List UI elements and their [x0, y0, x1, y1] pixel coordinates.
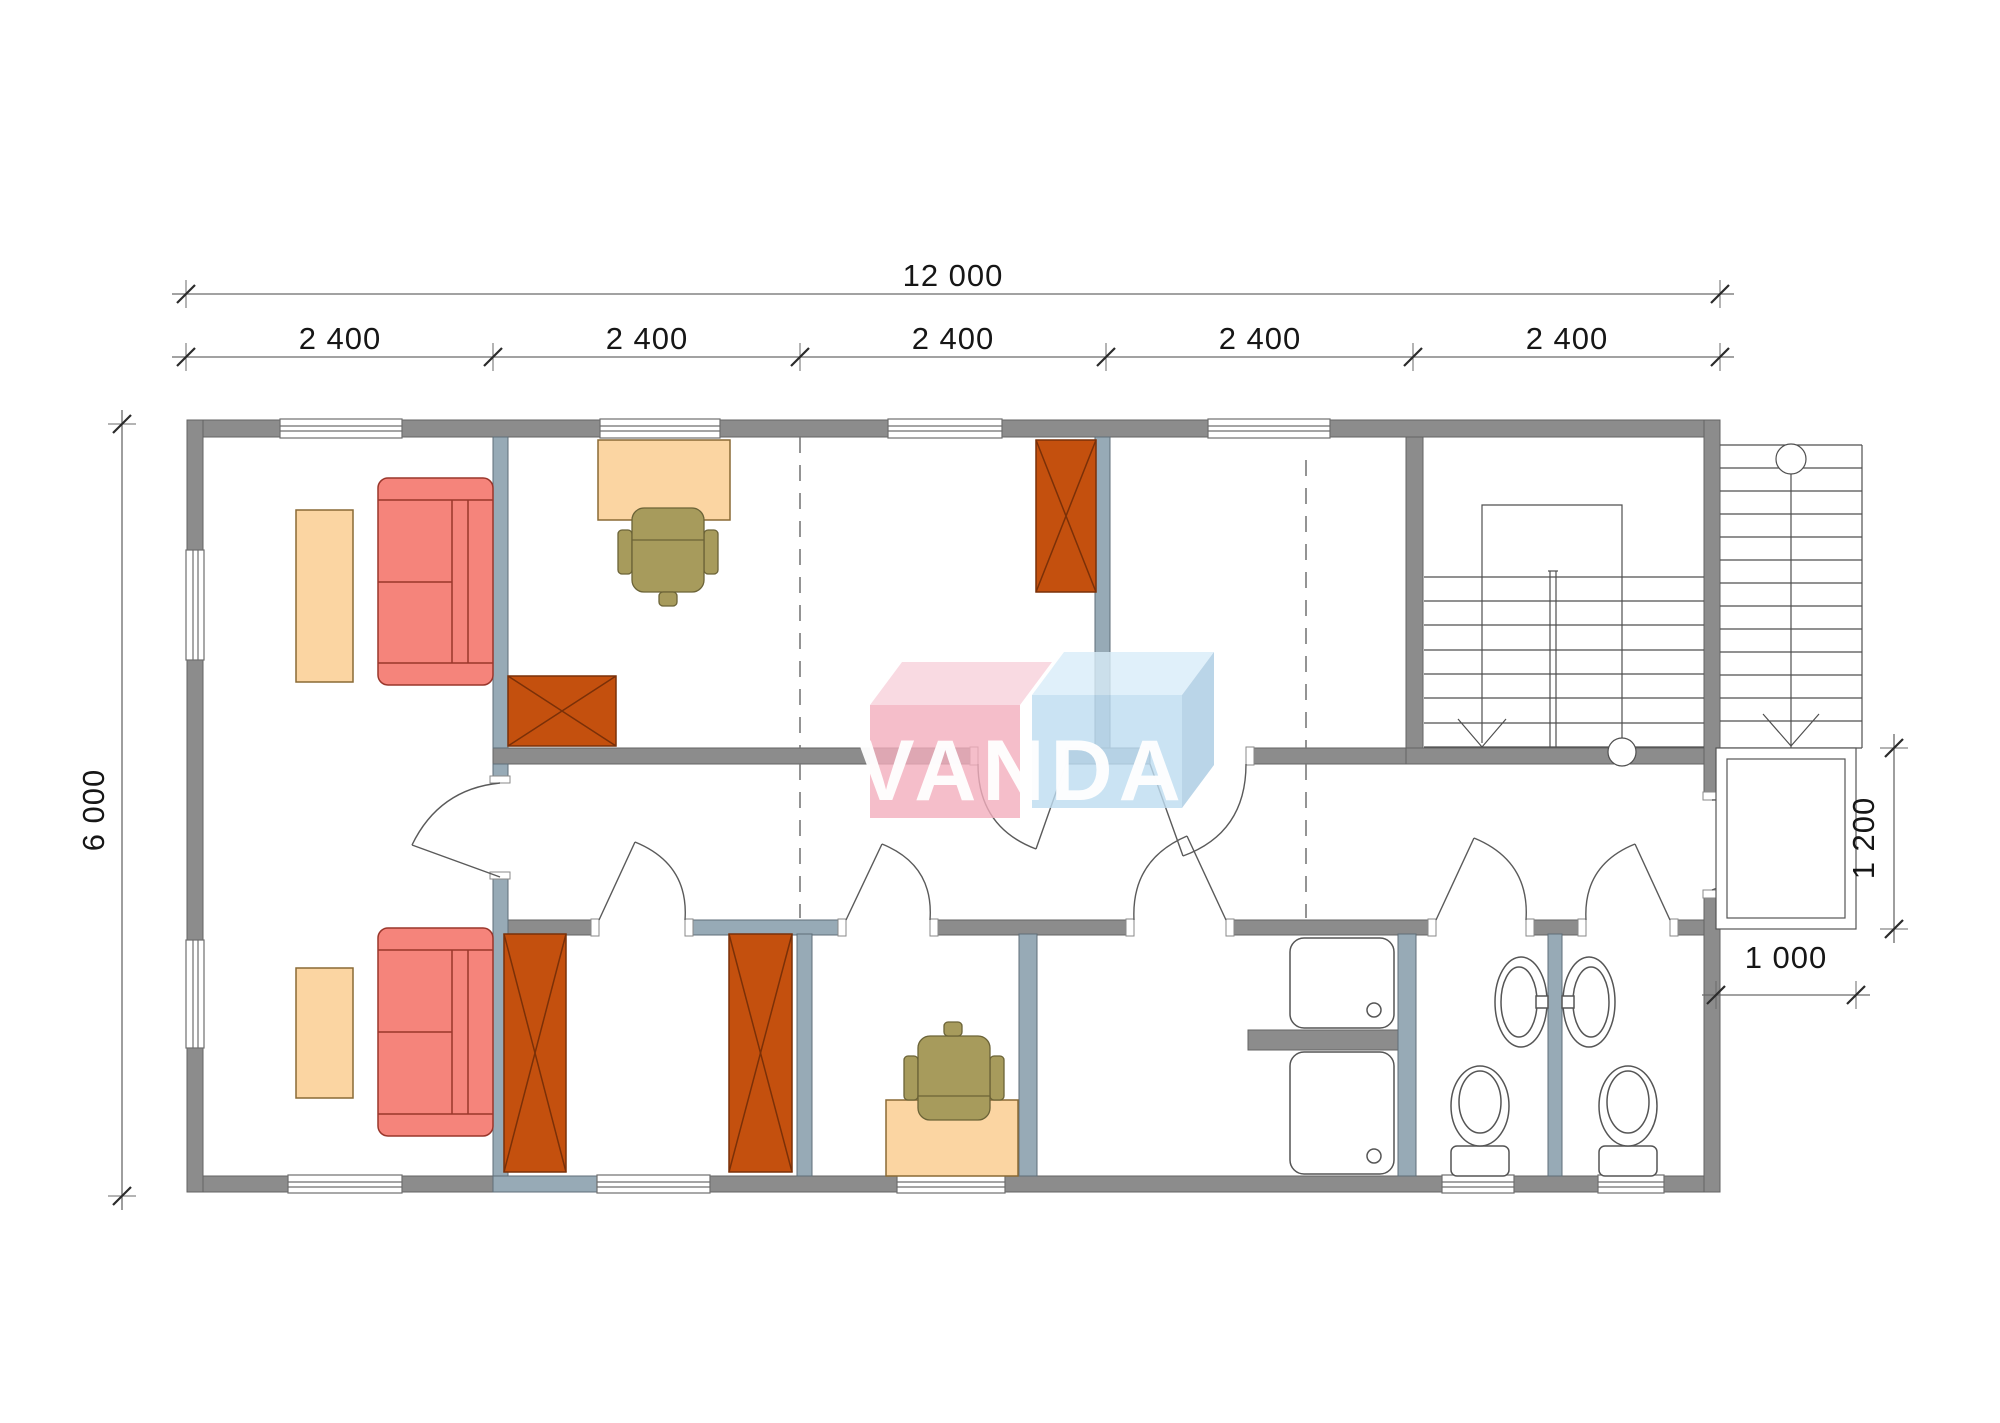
stair-ext-start-circle	[1776, 444, 1806, 474]
wall-corridor-bottom-blue	[685, 920, 846, 935]
wall-left	[187, 420, 203, 1192]
dim-label-bay-1: 2 400	[299, 321, 382, 356]
wall-shower-divider-stub	[1248, 1030, 1398, 1050]
dim-label-porch-side: 1 200	[1846, 797, 1881, 880]
window-bottom-wc2	[1598, 1175, 1664, 1193]
wall-roomB-roomC	[797, 934, 812, 1176]
window-top-1	[280, 419, 402, 438]
window-top-4	[1208, 419, 1330, 438]
window-bottom-2	[597, 1175, 710, 1193]
floor-plan-sheet: VANDA	[0, 0, 2000, 1423]
logo-right-box-top	[1032, 652, 1214, 695]
wall-right-upper	[1704, 420, 1720, 800]
wall-corridor-bottom-4	[1526, 920, 1586, 935]
window-bottom-1	[288, 1175, 402, 1193]
window-top-2	[600, 419, 720, 438]
wall-roomC-shower	[1019, 934, 1037, 1176]
faucet-icon	[1562, 996, 1574, 1008]
drain-icon	[1367, 1003, 1381, 1017]
wardrobe-room-b-right	[729, 934, 792, 1172]
wardrobe-top-right	[1036, 440, 1096, 592]
sink-wc1	[1495, 957, 1548, 1047]
sink-wc2	[1562, 957, 1615, 1047]
toilet-wc1	[1451, 1066, 1509, 1176]
wall-corridor-bottom-2	[930, 920, 1134, 935]
dim-label-bay-5: 2 400	[1526, 321, 1609, 356]
dim-label-porch-front: 1 000	[1745, 940, 1828, 975]
wall-shower-wc	[1398, 934, 1416, 1176]
window-left-2	[186, 940, 204, 1048]
shower-tray-1	[1290, 938, 1394, 1028]
porch-outer	[1716, 748, 1856, 929]
toilet-wc2	[1599, 1066, 1657, 1176]
window-left-1	[186, 550, 204, 660]
brand-logo-text: VANDA	[857, 723, 1186, 819]
wall-corridor-bottom-3	[1226, 920, 1436, 935]
coffee-table-upper	[296, 510, 353, 682]
dim-label-bay-3: 2 400	[912, 321, 995, 356]
wardrobe-top-middle-room	[508, 676, 616, 746]
faucet-icon	[1536, 996, 1548, 1008]
wall-right-lower	[1704, 890, 1720, 1192]
floor-plan-drawing: VANDA	[0, 0, 2000, 1423]
dim-label-bay-4: 2 400	[1219, 321, 1302, 356]
dim-label-total-depth: 6 000	[76, 769, 111, 852]
wall-livingroom-right-upper	[493, 437, 508, 748]
wall-wc-divider	[1548, 934, 1562, 1176]
stair-start-circle	[1608, 738, 1636, 766]
wall-bottom-blue-segment	[493, 1176, 597, 1192]
sofa-lower	[378, 928, 493, 1136]
drain-icon	[1367, 1149, 1381, 1163]
wall-stair-room-bottom	[1406, 748, 1704, 764]
shower-tray-2	[1290, 1052, 1394, 1174]
window-top-3	[888, 419, 1002, 438]
window-bottom-3	[897, 1175, 1005, 1193]
dim-label-total-width: 12 000	[903, 258, 1004, 293]
sofa-upper	[378, 478, 493, 685]
dim-label-bay-2: 2 400	[606, 321, 689, 356]
coffee-table-lower	[296, 968, 353, 1098]
logo-left-box-top	[870, 662, 1052, 705]
wall-stair-room-left	[1406, 437, 1423, 748]
window-bottom-wc1	[1442, 1175, 1514, 1193]
wall-corridor-top-right	[1246, 748, 1406, 764]
wardrobe-room-b-left	[504, 934, 566, 1172]
porch	[1716, 748, 1856, 929]
wall-corridor-bottom-1	[493, 920, 599, 935]
